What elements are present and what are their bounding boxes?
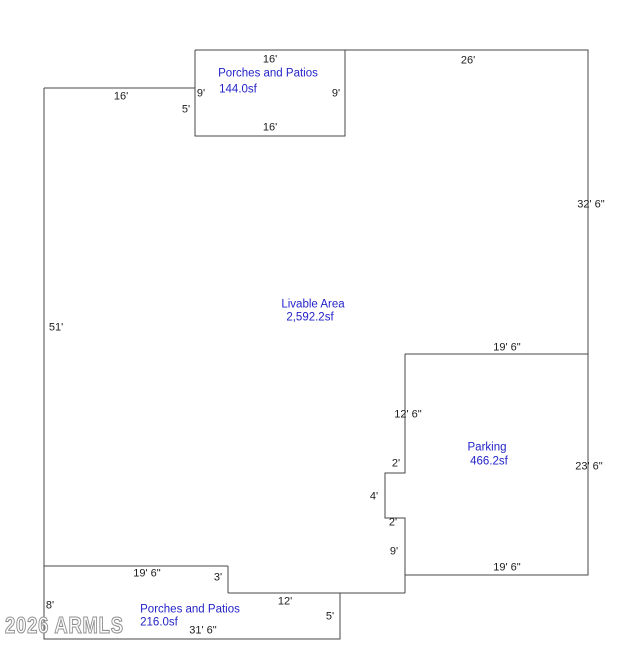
area-label-porch-top-size: 144.0sf bbox=[219, 84, 257, 96]
dim-porch-top-width-top: 16' bbox=[263, 55, 277, 66]
floorplan-lines bbox=[0, 0, 623, 656]
dim-main-top-width: 26' bbox=[461, 56, 475, 67]
dim-porch2-right-height: 5' bbox=[326, 612, 334, 623]
area-label-livable-size: 2,592.2sf bbox=[286, 312, 333, 324]
area-label-porch-bottom-name: Porches and Patios bbox=[140, 604, 240, 616]
area-label-porch-top-name: Porches and Patios bbox=[218, 68, 318, 80]
dim-right-side-upper: 32' 6" bbox=[577, 200, 604, 211]
dim-notch-top: 2' bbox=[392, 459, 400, 470]
dim-parking-left-height: 12' 6" bbox=[394, 410, 421, 421]
area-label-porch-bottom-size: 216.0sf bbox=[140, 617, 178, 629]
dim-left-side: 51' bbox=[49, 323, 63, 334]
area-label-parking-name: Parking bbox=[468, 442, 507, 454]
dim-bottom-step: 3' bbox=[214, 573, 222, 584]
dim-porch2-top-width: 12' bbox=[278, 597, 292, 608]
dim-porch-left-lower: 5' bbox=[182, 105, 190, 116]
area-label-livable-name: Livable Area bbox=[281, 299, 344, 311]
dim-right-side-lower: 23' 6" bbox=[575, 462, 602, 473]
area-label-parking-size: 466.2sf bbox=[470, 456, 508, 468]
dim-parking-top-width: 19' 6" bbox=[493, 343, 520, 354]
dim-porch2-left-height: 8' bbox=[46, 601, 54, 612]
dim-porch2-bottom-width: 31' 6" bbox=[189, 626, 216, 637]
dim-notch-left: 4' bbox=[370, 492, 378, 503]
dim-livable-bottom-width: 19' 6" bbox=[133, 569, 160, 580]
floorplan-sketch: 16' Porches and Patios 144.0sf 9' 9' 5' … bbox=[0, 0, 623, 656]
dim-parking-bottom-width: 19' 6" bbox=[493, 563, 520, 574]
dim-livable-top-width: 16' bbox=[114, 92, 128, 103]
dim-porch-right-height: 9' bbox=[332, 89, 340, 100]
dim-porch-left-height: 9' bbox=[197, 89, 205, 100]
dim-notch-bottom: 2' bbox=[389, 518, 397, 529]
armls-watermark: 2026 ARMLS bbox=[5, 612, 124, 639]
dim-parking-left-lower: 9' bbox=[390, 547, 398, 558]
dim-porch-bottom-width: 16' bbox=[263, 123, 277, 134]
